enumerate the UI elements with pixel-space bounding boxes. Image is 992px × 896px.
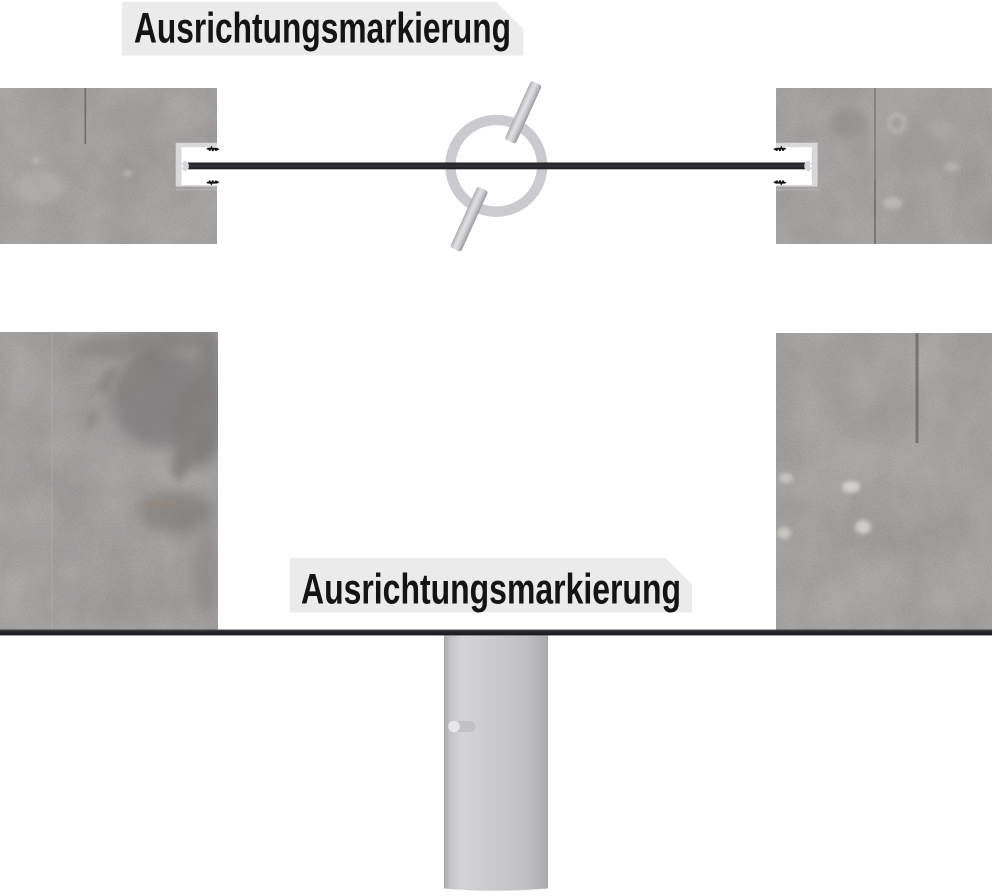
svg-text:Ausrichtungsmarkierung: Ausrichtungsmarkierung	[134, 6, 511, 53]
svg-text:Ausrichtungsmarkierung: Ausrichtungsmarkierung	[301, 565, 681, 613]
